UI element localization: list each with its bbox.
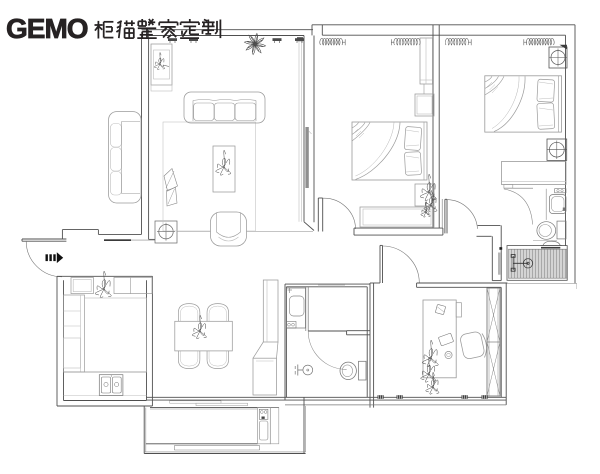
- svg-text:GEMO: GEMO: [6, 13, 88, 44]
